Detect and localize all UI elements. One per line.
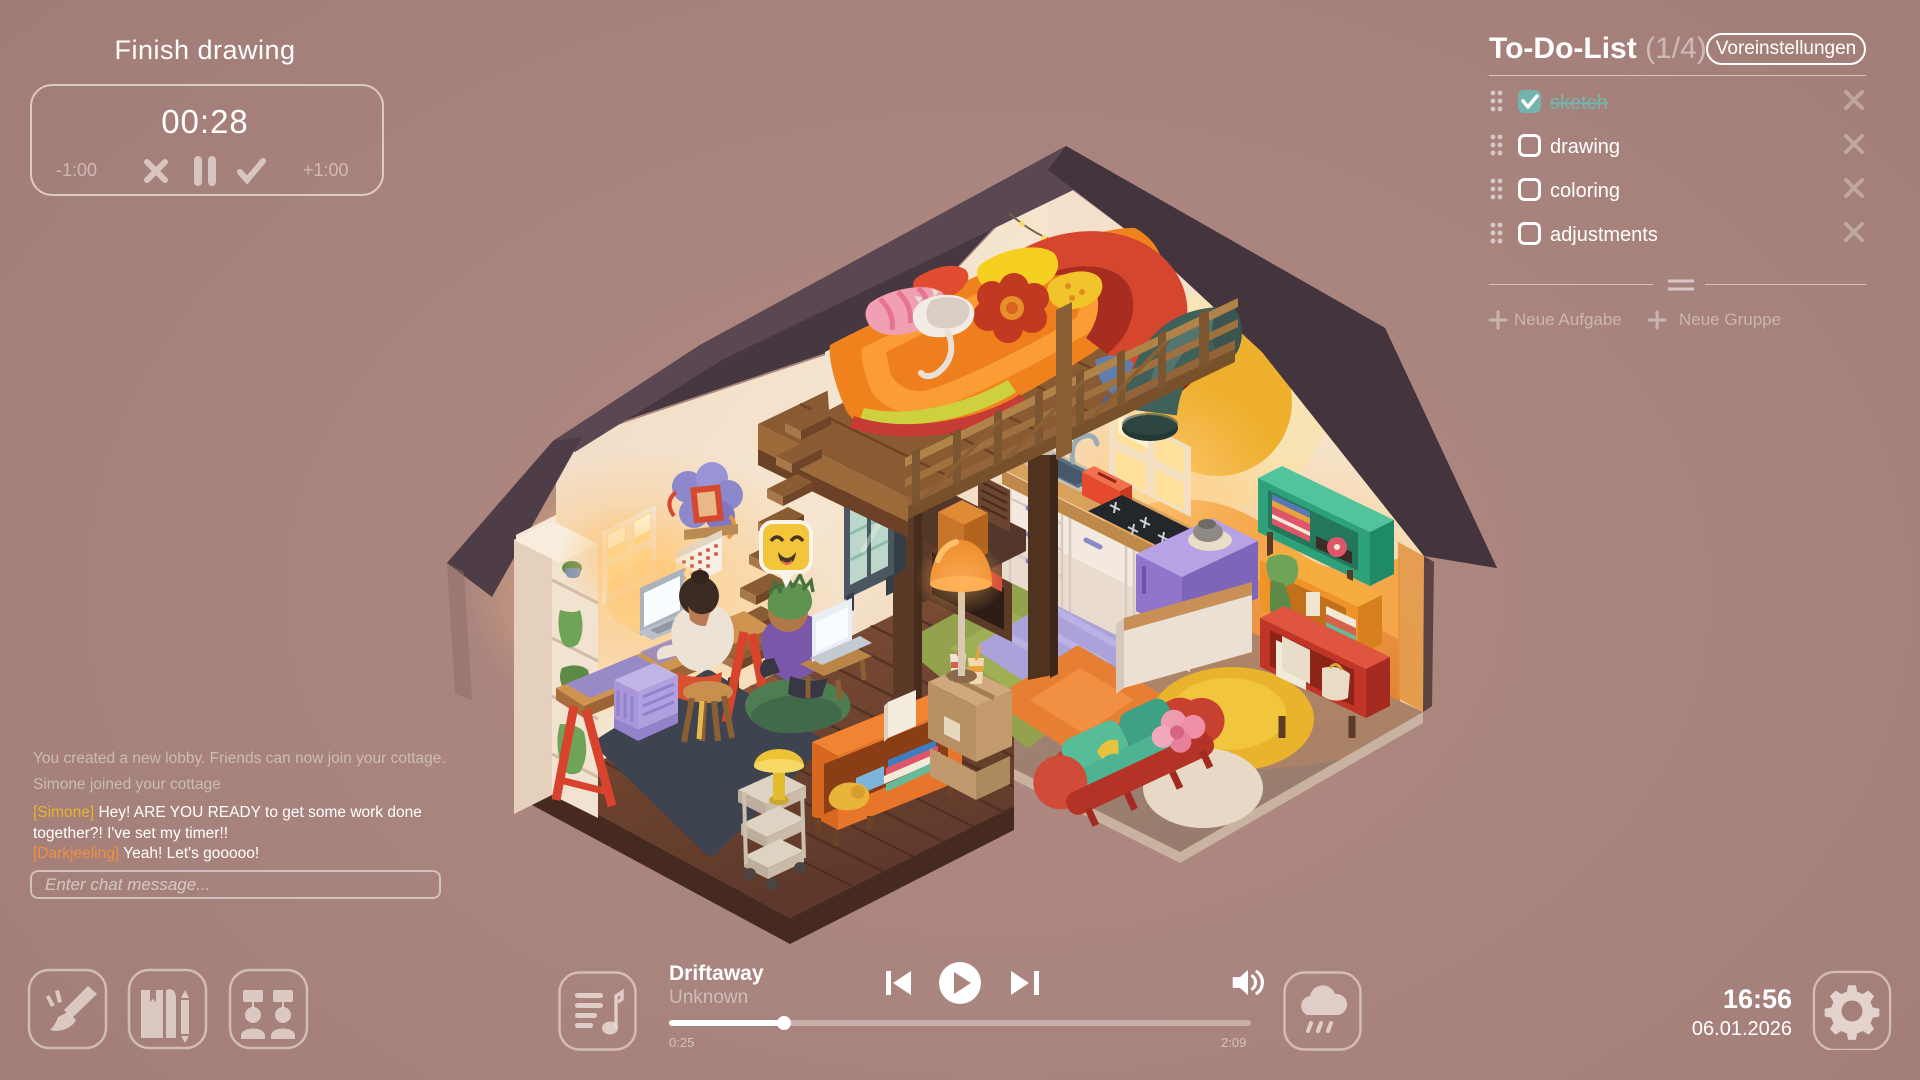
svg-text:drawing: drawing: [1550, 136, 1620, 158]
svg-text:sketch: sketch: [1550, 92, 1608, 114]
svg-text:adjustments: adjustments: [1550, 224, 1658, 246]
svg-text:coloring: coloring: [1550, 180, 1620, 202]
